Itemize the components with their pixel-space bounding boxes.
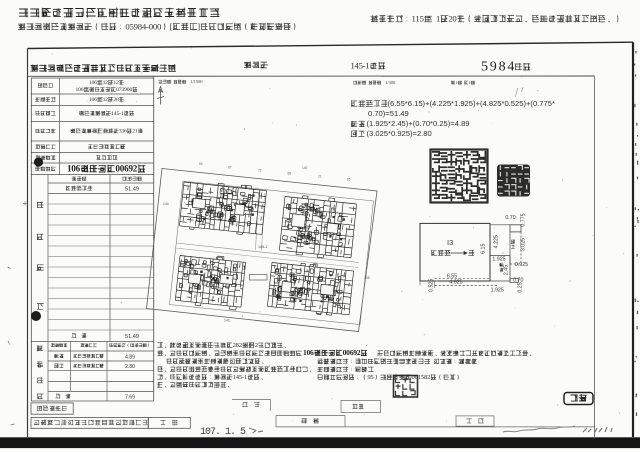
svg-text:1.925: 1.925 [491, 287, 504, 293]
svg-text:4.225: 4.225 [494, 235, 500, 248]
svg-text:95: 95 [367, 374, 374, 381]
svg-text:6.55: 6.55 [447, 273, 457, 279]
svg-text:1.925: 1.925 [492, 257, 505, 263]
svg-text:6.15: 6.15 [481, 243, 487, 253]
svg-text:1: 1 [436, 13, 440, 23]
svg-text:20: 20 [448, 13, 457, 23]
svg-text:106: 106 [89, 80, 97, 86]
svg-text:(1.925*2.45)+(0.70*0.25)=4.89: (1.925*2.45)+(0.70*0.25)=4.89 [367, 119, 470, 128]
svg-text:106: 106 [89, 97, 97, 103]
svg-text:64: 64 [199, 162, 203, 166]
svg-text:2.45: 2.45 [504, 265, 510, 275]
svg-text:107. 1. 5: 107. 1. 5 [200, 427, 246, 438]
svg-text:282: 282 [233, 342, 242, 349]
svg-text:72: 72 [258, 169, 262, 173]
svg-text:143: 143 [224, 319, 230, 323]
svg-text:21: 21 [132, 129, 138, 135]
svg-text:85: 85 [347, 178, 351, 182]
svg-text:I3: I3 [447, 238, 453, 247]
svg-text:[: [ [170, 21, 173, 31]
svg-text:2.80: 2.80 [125, 364, 135, 370]
svg-text:(6.55*6.15)+(4.225*1.925)+(4.8: (6.55*6.15)+(4.225*1.925)+(4.825*0.525)+… [388, 99, 555, 108]
svg-text:(3.025*0.925)=2.80: (3.025*0.925)=2.80 [367, 129, 432, 138]
svg-text:12: 12 [103, 97, 109, 103]
svg-text:106: 106 [76, 87, 84, 93]
svg-text:12: 12 [113, 80, 119, 86]
svg-text:5984: 5984 [481, 60, 516, 75]
svg-text:7.69: 7.69 [125, 395, 135, 401]
svg-text:28: 28 [113, 97, 119, 103]
svg-text:88: 88 [288, 172, 292, 176]
svg-text:0.775: 0.775 [521, 213, 527, 226]
svg-text:115: 115 [412, 13, 425, 23]
svg-text:00692: 00692 [343, 348, 361, 357]
svg-text:0.25: 0.25 [518, 282, 524, 292]
svg-text:145-1: 145-1 [258, 245, 267, 249]
svg-text:3.025: 3.025 [521, 238, 527, 251]
svg-text:4.89: 4.89 [125, 354, 135, 360]
svg-text:51.49: 51.49 [125, 334, 139, 340]
svg-text:106: 106 [303, 348, 314, 357]
svg-text:05984-000: 05984-000 [125, 21, 162, 31]
svg-text:073900: 073900 [116, 87, 132, 93]
svg-text:144: 144 [163, 202, 169, 206]
svg-text:4.625: 4.625 [449, 279, 462, 285]
svg-text:145-1: 145-1 [351, 60, 370, 70]
svg-text:0.70)=51.49: 0.70)=51.49 [368, 109, 409, 118]
svg-text:2: 2 [255, 342, 258, 349]
svg-text:12: 12 [103, 80, 109, 86]
svg-text:1/1500: 1/1500 [190, 79, 203, 84]
svg-text:145: 145 [364, 276, 370, 280]
svg-text:51.49: 51.49 [125, 187, 139, 193]
svg-text:0.925: 0.925 [515, 262, 528, 268]
svg-text:]: ] [197, 21, 200, 31]
svg-text:0.525: 0.525 [429, 279, 435, 292]
svg-text:145-1: 145-1 [233, 374, 248, 381]
svg-text:140: 140 [302, 166, 308, 170]
svg-text:87: 87 [228, 166, 232, 170]
svg-text:106: 106 [67, 164, 81, 174]
svg-text:145-1: 145-1 [111, 111, 124, 117]
svg-text:1/300: 1/300 [385, 80, 396, 85]
svg-text:00692: 00692 [115, 164, 137, 174]
svg-text:336: 336 [119, 129, 127, 135]
svg-text:21: 21 [318, 175, 322, 179]
svg-text:0.70: 0.70 [505, 215, 515, 221]
